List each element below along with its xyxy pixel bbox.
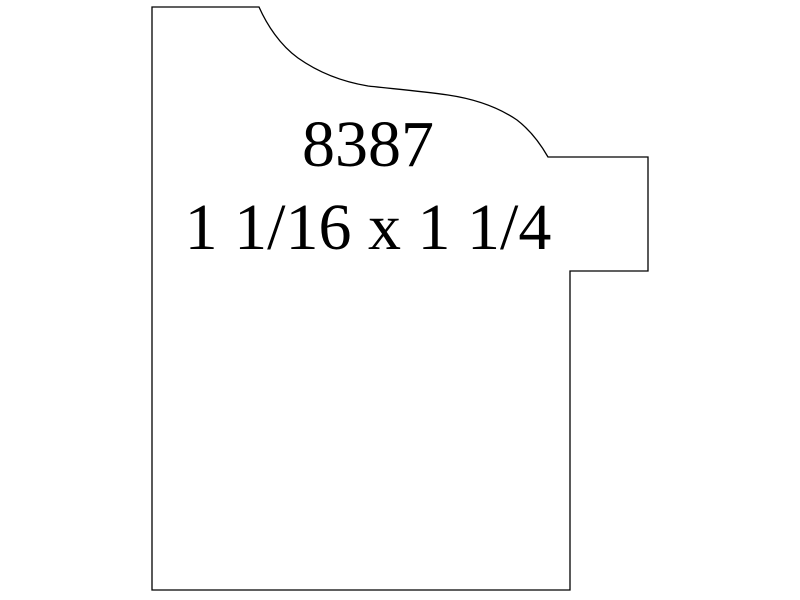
drawing-canvas: 8387 1 1/16 x 1 1/4 [0,0,800,600]
profile-outline-path [152,7,648,590]
profile-dimensions-label: 1 1/16 x 1 1/4 [150,195,586,261]
moulding-profile-drawing [0,0,800,600]
profile-number-label: 8387 [150,112,586,178]
